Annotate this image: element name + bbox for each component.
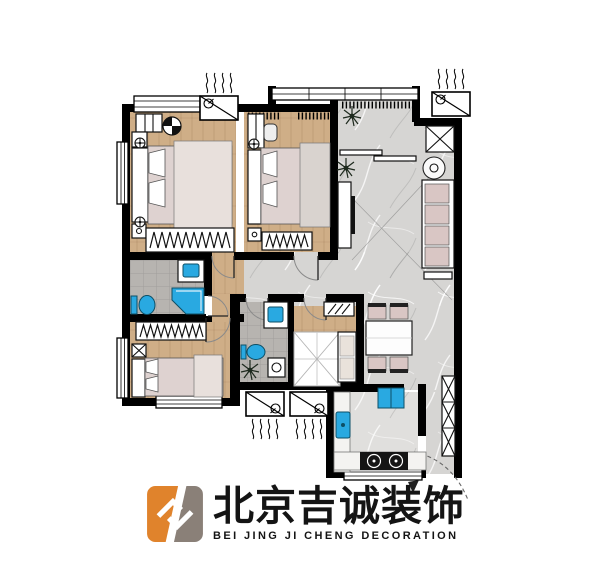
- chair-icon: [390, 305, 408, 319]
- dresser-icon: [136, 114, 162, 132]
- window-master-top: [134, 96, 200, 112]
- sofa-shelf: [424, 272, 452, 279]
- chair-icon: [368, 305, 386, 319]
- chair-icon: [390, 357, 408, 371]
- bed-blanket: [300, 143, 330, 227]
- logo-text-en: BEI JING JI CHENG DECORATION: [213, 530, 465, 542]
- basin-icon: [183, 264, 199, 277]
- balcony-sliding-door: [340, 150, 382, 155]
- chair-icon: [368, 357, 386, 371]
- ac-unit-icon: [200, 73, 238, 120]
- window-master-left: [117, 142, 128, 204]
- toilet-icon: [247, 345, 265, 360]
- wall-light-icon: [135, 138, 145, 148]
- bed-headboard: [248, 150, 261, 224]
- floor-plan: [0, 0, 600, 563]
- corridor-floor-2: [212, 294, 230, 322]
- bed-blanket: [174, 141, 232, 229]
- entry: [442, 376, 455, 456]
- chair-icon: [264, 124, 277, 141]
- page: 北京吉诚装饰 BEI JING JI CHENG DECORATION: [0, 0, 600, 563]
- washer-icon: [268, 358, 285, 377]
- tv-cabinet-icon: [338, 182, 351, 248]
- toilet-tank: [241, 345, 246, 359]
- toilet-icon: [139, 296, 155, 315]
- toilet-tank: [131, 296, 137, 314]
- logo-text-cn: 北京吉诚装饰: [213, 486, 465, 528]
- bed-headboard: [132, 148, 148, 222]
- bed-blanket: [194, 355, 222, 397]
- window-bedroom3-bottom: [156, 396, 222, 408]
- wardrobe-icon: [146, 228, 234, 252]
- side-table-icon: [423, 157, 445, 179]
- logo-mark-icon: [146, 485, 204, 543]
- logo-text: 北京吉诚装饰 BEI JING JI CHENG DECORATION: [213, 486, 465, 543]
- ac-unit-icon: [290, 392, 328, 439]
- ac-unit-icon: [246, 392, 284, 439]
- ac-unit-icon: [432, 69, 470, 116]
- tv-icon: [351, 196, 355, 234]
- basin-icon: [268, 307, 283, 322]
- window-bedroom3-left: [117, 338, 128, 398]
- bed-headboard: [132, 359, 145, 397]
- logo: 北京吉诚装饰 BEI JING JI CHENG DECORATION: [146, 485, 465, 543]
